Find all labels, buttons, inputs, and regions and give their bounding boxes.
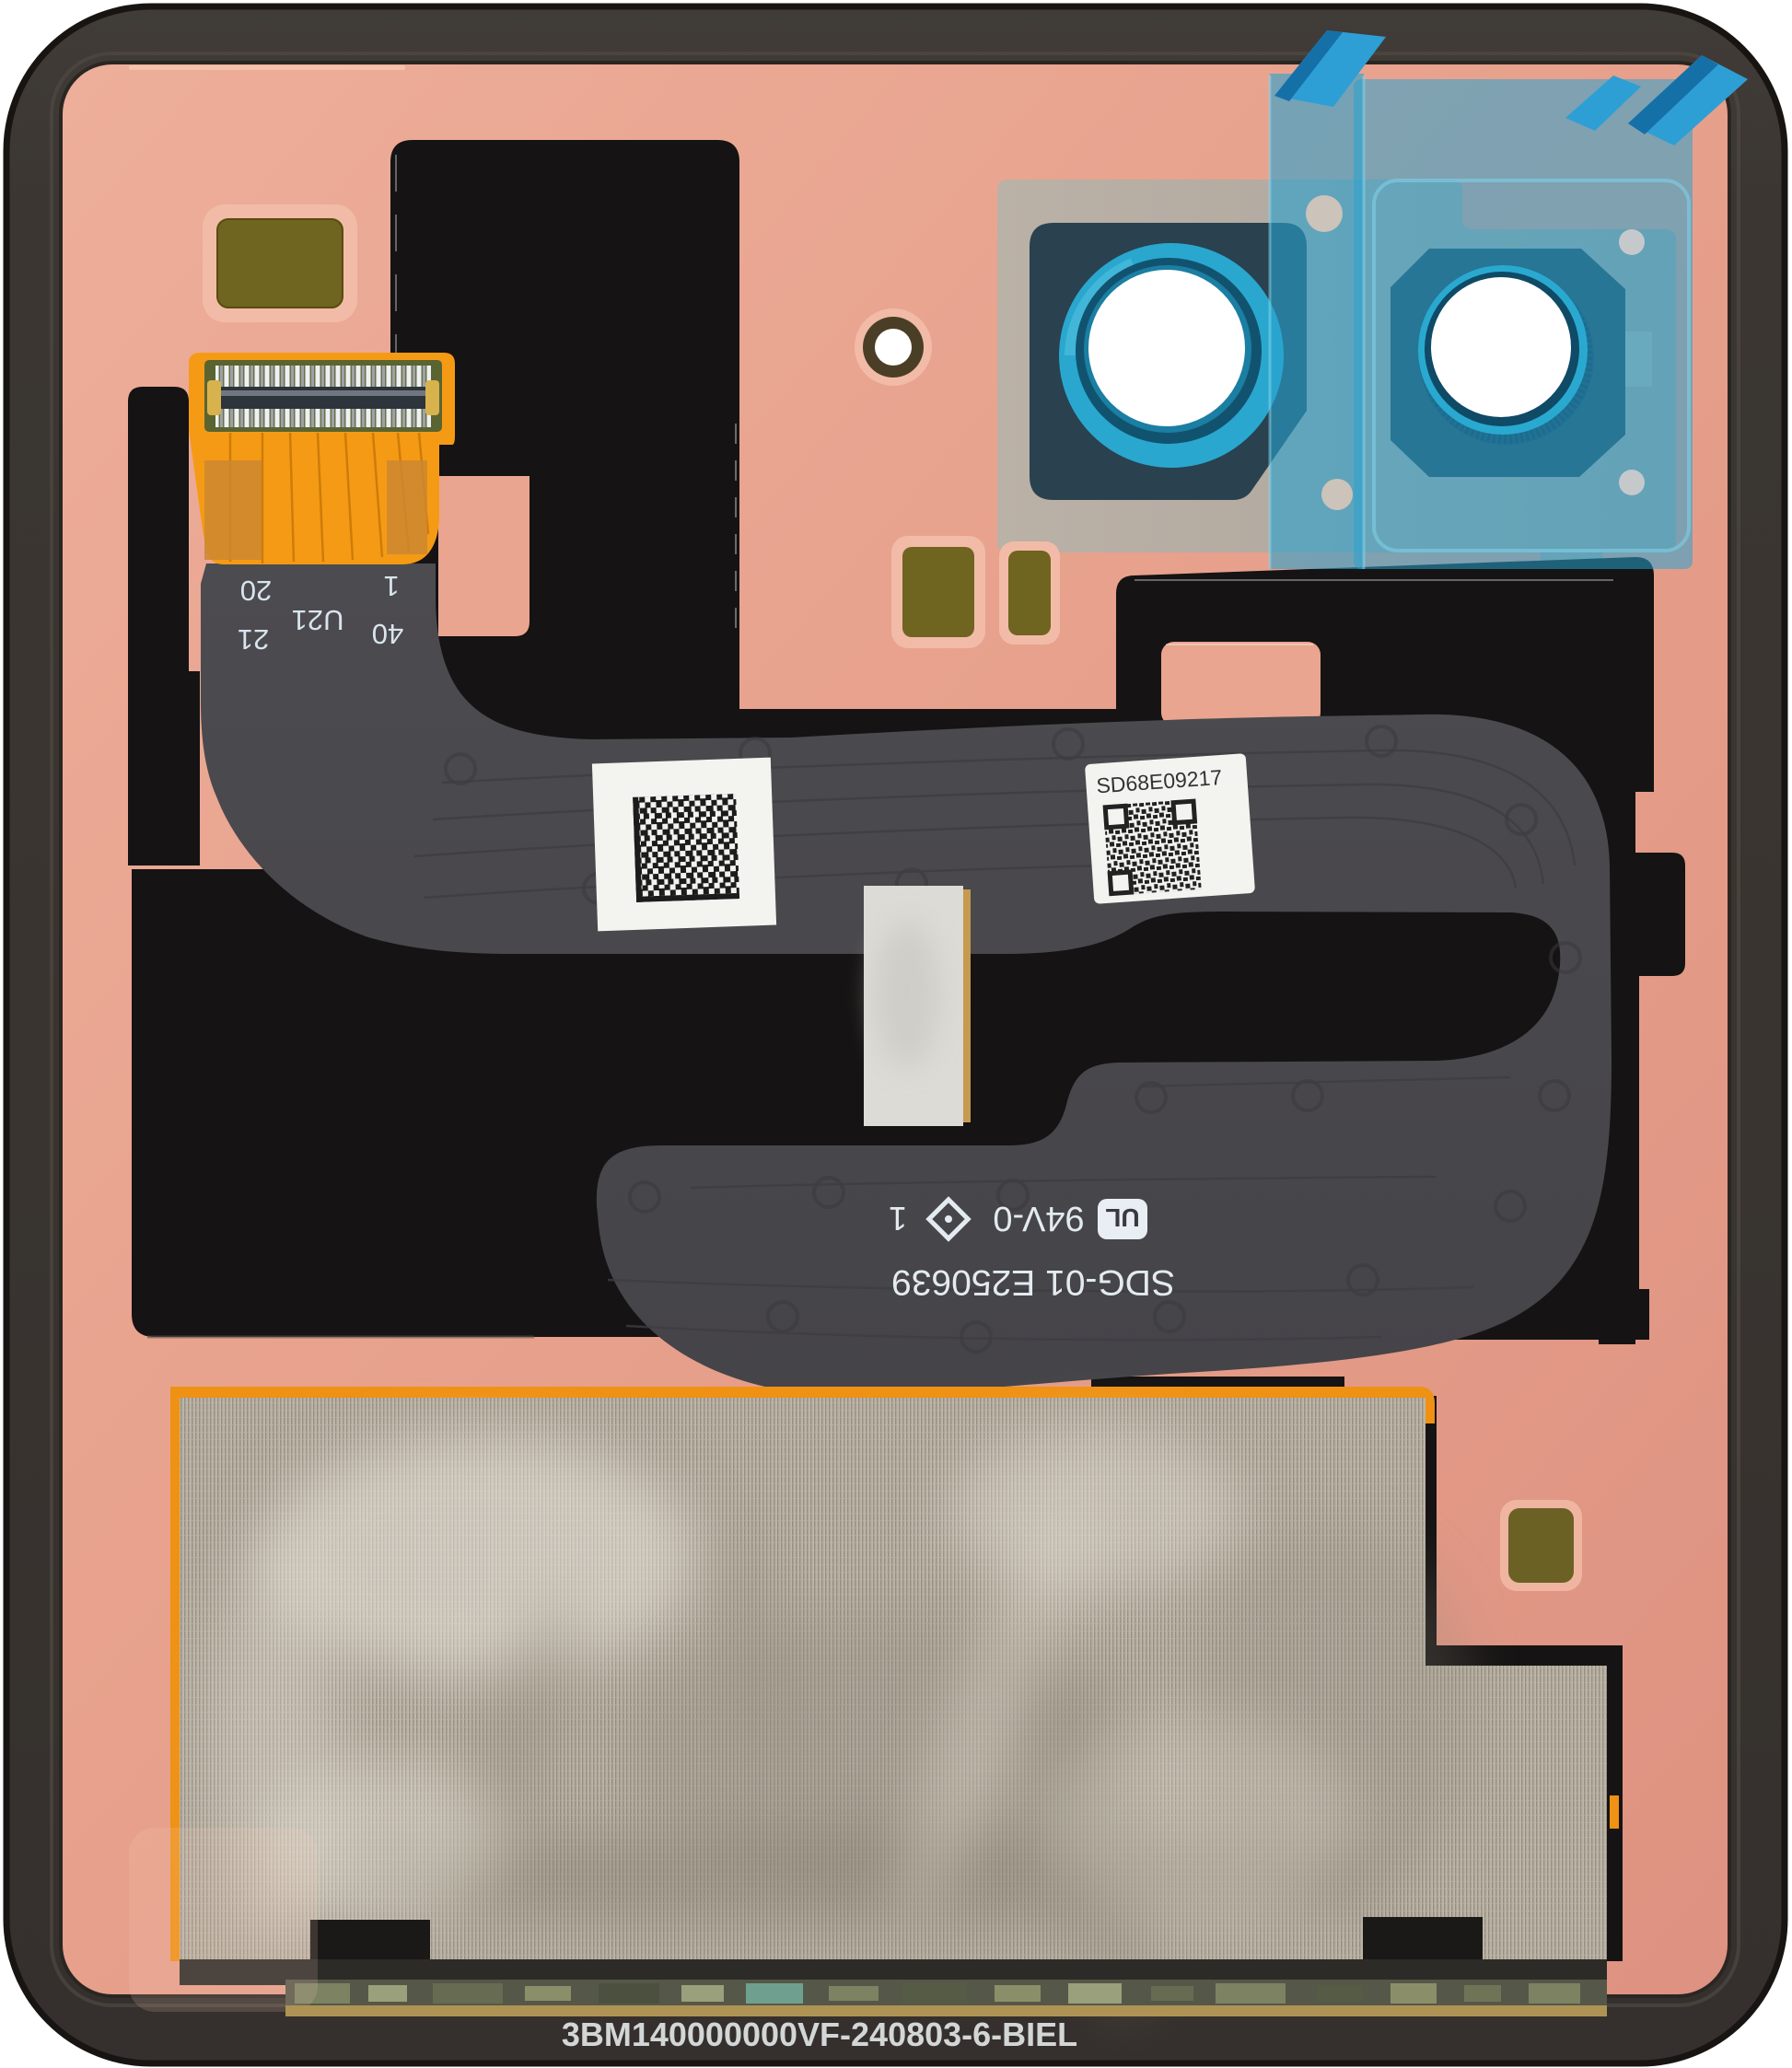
svg-text:3BM140000000VF-240803-6-BIEL: 3BM140000000VF-240803-6-BIEL <box>562 2016 1077 2053</box>
svg-text:UL: UL <box>1105 1203 1139 1232</box>
svg-text:1: 1 <box>383 570 399 602</box>
svg-text:40: 40 <box>372 618 403 650</box>
svg-text:20: 20 <box>240 575 272 607</box>
svg-text:U21: U21 <box>292 604 344 636</box>
svg-text:94V-0: 94V-0 <box>993 1199 1084 1237</box>
svg-text:21: 21 <box>238 623 269 656</box>
svg-text:SDG-01 E250639: SDG-01 E250639 <box>891 1262 1175 1302</box>
svg-text:1: 1 <box>889 1200 907 1237</box>
